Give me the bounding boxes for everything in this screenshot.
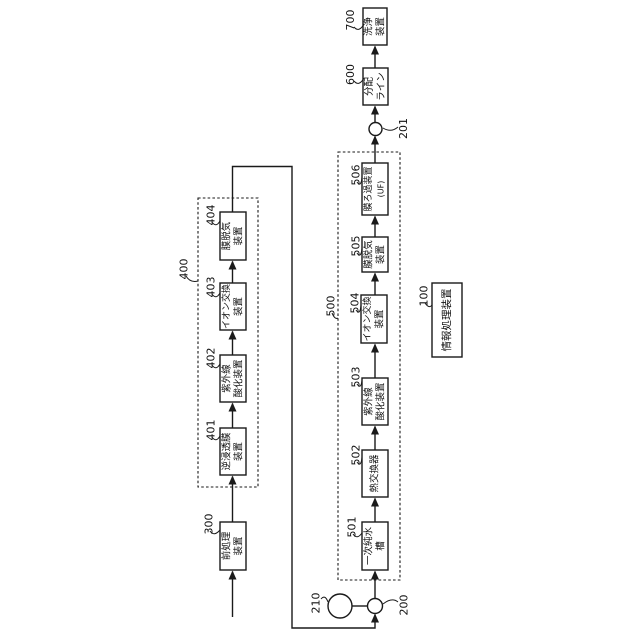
box-300-text-line-1: 装置: [233, 536, 245, 555]
box-700-text-line-1: 装置: [375, 17, 387, 36]
box-100-text-line-0: 情報処理装置: [440, 289, 453, 352]
box-403-text-line-0: イオン交換: [220, 284, 232, 329]
flow-diagram-canvas: 洗浄 装置 分配 ライン 膜ろ過装置 (UF) 膜脱気 装置 イオン交換 装置 …: [0, 0, 640, 640]
box-505-text-line-0: 膜脱気: [363, 240, 375, 269]
small-circle-201: [369, 123, 382, 136]
box-402-text-line-1: 酸化装置: [233, 359, 245, 397]
ref-label-500: 500: [325, 296, 338, 317]
box-505-text-line-1: 装置: [375, 245, 387, 264]
ref-label-402: 402: [205, 348, 218, 369]
ref-label-700: 700: [344, 10, 357, 31]
box-503-text-line-0: 紫外線: [363, 387, 375, 416]
ref-label-401: 401: [205, 420, 218, 441]
box-506-text-line-0: 膜ろ過装置: [362, 166, 374, 211]
ref-label-400: 400: [178, 259, 191, 280]
box-501-text-line-1: 槽: [375, 541, 387, 551]
box-402-text-line-0: 紫外線: [221, 364, 233, 393]
large-circle-210: [328, 594, 352, 618]
group-500-outline: [338, 152, 400, 580]
patent-flow-diagram-page: 洗浄 装置 分配 ライン 膜ろ過装置 (UF) 膜脱気 装置 イオン交換 装置 …: [0, 0, 640, 640]
ref-label-100: 100: [418, 286, 431, 307]
flow-lines: [233, 47, 376, 629]
ref-label-201: 201: [397, 118, 410, 139]
connector-201: [383, 127, 398, 130]
box-403-text-line-1: 装置: [233, 297, 245, 316]
ref-label-200: 200: [398, 595, 411, 616]
ref-label-501: 501: [346, 517, 359, 538]
reference-labels: 700 600 201 506 505 504 503 502 501 500 …: [178, 10, 431, 616]
box-502-text-line-0: 熱交換器: [369, 454, 381, 493]
box-404-text-line-1: 装置: [233, 226, 245, 245]
box-503-text-line-1: 酸化装置: [375, 382, 387, 420]
box-404-text-line-0: 膜脱気: [221, 221, 233, 250]
box-506-text-line-1: (UF): [377, 181, 386, 198]
box-401-text-line-0: 逆浸透膜: [221, 432, 233, 471]
box-700-text-line-0: 洗浄: [363, 17, 375, 37]
ref-label-300: 300: [203, 514, 216, 535]
box-501-text-line-0: 一次純水: [363, 527, 375, 566]
ref-label-210: 210: [310, 593, 323, 614]
box-600-text-line-0: 分配: [364, 77, 375, 97]
ref-label-404: 404: [205, 205, 218, 226]
box-504-text-line-0: イオン交換: [361, 296, 373, 341]
box-300-text-line-0: 前処理: [221, 531, 233, 560]
box-504-text-line-1: 装置: [374, 309, 386, 328]
ref-label-403: 403: [205, 277, 218, 298]
connector-200: [383, 600, 398, 604]
ref-label-503: 503: [350, 367, 363, 388]
small-circle-200: [368, 599, 383, 614]
box-600-text-line-1: ライン: [376, 72, 387, 101]
box-401-text-line-1: 装置: [233, 442, 245, 461]
